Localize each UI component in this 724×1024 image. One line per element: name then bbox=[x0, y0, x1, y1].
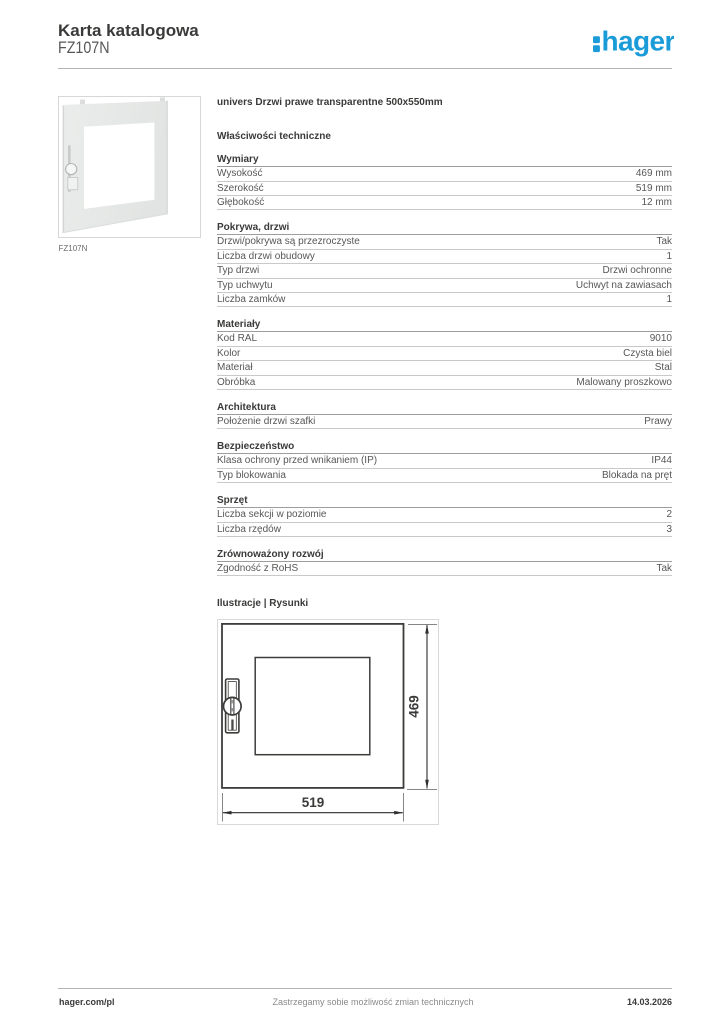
svg-text:519: 519 bbox=[302, 795, 325, 810]
svg-text:469: 469 bbox=[407, 695, 422, 718]
